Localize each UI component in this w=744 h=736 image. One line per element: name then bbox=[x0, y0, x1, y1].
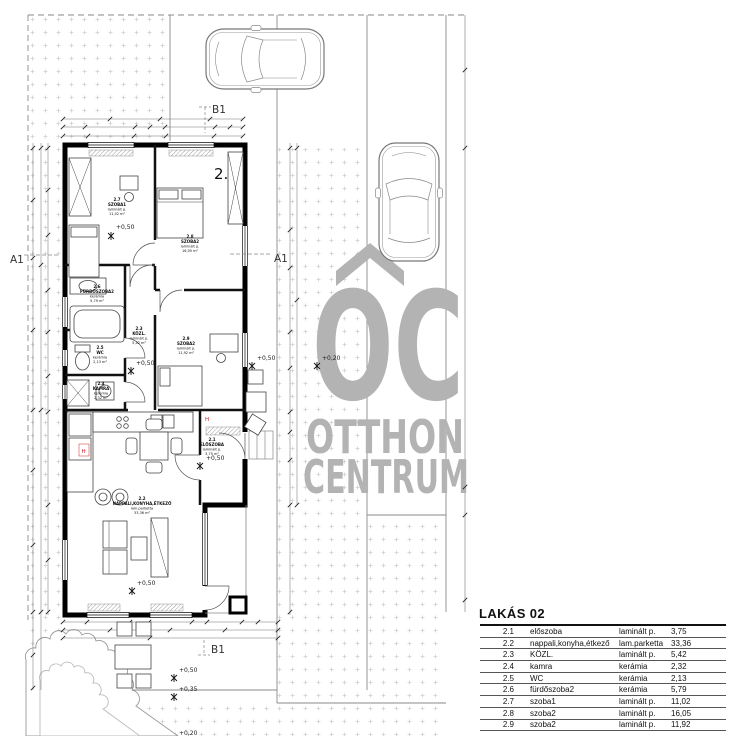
svg-text:SZOBA2: SZOBA2 bbox=[181, 239, 199, 244]
watermark-logo: OC OTTHON CENTRUM bbox=[303, 243, 469, 504]
room-name: szoba2 bbox=[530, 709, 619, 718]
svg-text:kerámia: kerámia bbox=[93, 356, 107, 360]
svg-text:33,36 m²: 33,36 m² bbox=[134, 511, 151, 515]
room-floor: laminált p. bbox=[619, 650, 671, 659]
svg-text:2,32 m²: 2,32 m² bbox=[94, 396, 108, 400]
room-number: 2.5 bbox=[480, 674, 514, 683]
level-050: +0,50 bbox=[206, 455, 225, 462]
room-floor: kerámia bbox=[619, 685, 671, 694]
svg-text:laminált p.: laminált p. bbox=[181, 245, 200, 249]
level-020: +0,20 bbox=[179, 730, 198, 736]
unit-number: 2. bbox=[214, 165, 228, 183]
room-name: WC bbox=[530, 674, 619, 683]
table-row: 2.9 szoba2 laminált p. 11,92 bbox=[480, 720, 726, 732]
svg-text:5,79 m²: 5,79 m² bbox=[90, 299, 104, 303]
room-number: 2.8 bbox=[480, 709, 514, 718]
svg-text:kerámia: kerámia bbox=[94, 392, 108, 396]
room-number: 2.9 bbox=[480, 720, 514, 729]
room-floor: laminált p. bbox=[619, 720, 671, 729]
table-row: 2.2 nappali,konyha,étkező lam.parketta 3… bbox=[480, 638, 726, 650]
level-050: +0,50 bbox=[116, 224, 135, 231]
svg-text:11,92 m²: 11,92 m² bbox=[178, 351, 195, 355]
table-row: 2.6 fürdőszoba2 kerámia 5,79 bbox=[480, 684, 726, 696]
level-050: +0,50 bbox=[136, 360, 155, 367]
room-number: 2.7 bbox=[480, 697, 514, 706]
table-row: 2.8 szoba2 laminált p. 16,05 bbox=[480, 708, 726, 720]
room-area: 5,79 bbox=[671, 685, 711, 694]
room-name: kamra bbox=[530, 662, 619, 671]
room-floor: lam.parketta bbox=[619, 639, 671, 648]
room-area: 2,32 bbox=[671, 662, 711, 671]
room-area: 33,36 bbox=[671, 639, 711, 648]
room-area: 16,05 bbox=[671, 709, 711, 718]
section-a1-right: A1 bbox=[274, 253, 288, 265]
room-number: 2.3 bbox=[480, 650, 514, 659]
table-row: 2.3 KÖZL. laminált p. 5,42 bbox=[480, 649, 726, 661]
svg-text:KÖZL.: KÖZL. bbox=[132, 331, 146, 336]
room-floor: laminált p. bbox=[619, 697, 671, 706]
level-050: +0,50 bbox=[179, 667, 198, 674]
svg-text:laminált p.: laminált p. bbox=[203, 448, 222, 452]
svg-text:NAPPALI,KONYHA,ÉTKEZŐ: NAPPALI,KONYHA,ÉTKEZŐ bbox=[113, 501, 172, 506]
svg-text:SZOBA1: SZOBA1 bbox=[108, 202, 126, 207]
level-050: +0,50 bbox=[137, 580, 156, 587]
room-area: 3,75 bbox=[671, 627, 711, 636]
svg-text:16,05 m²: 16,05 m² bbox=[182, 249, 199, 253]
room-floor: kerámia bbox=[619, 662, 671, 671]
svg-text:laminált p.: laminált p. bbox=[177, 347, 196, 351]
entrance-steps bbox=[249, 431, 273, 459]
svg-text:laminált p.: laminált p. bbox=[108, 208, 127, 212]
table-row: 2.1 előszoba laminált p. 3,75 bbox=[480, 626, 726, 638]
svg-text:3,75 m²: 3,75 m² bbox=[205, 452, 219, 456]
watermark-oc: OC bbox=[312, 261, 464, 435]
table-row: 2.5 WC kerámia 2,13 bbox=[480, 673, 726, 685]
room-area: 11,02 bbox=[671, 697, 711, 706]
section-b1-bottom: B1 bbox=[211, 644, 225, 656]
room-number: 2.4 bbox=[480, 662, 514, 671]
room-area: 11,92 bbox=[671, 720, 711, 729]
section-b1-top: B1 bbox=[212, 104, 226, 116]
svg-text:FÜRDŐSZOBA2: FÜRDŐSZOBA2 bbox=[80, 289, 114, 294]
level-050: +0,50 bbox=[257, 355, 276, 362]
svg-text:ELŐSZOBA: ELŐSZOBA bbox=[200, 442, 225, 447]
room-number: 2.2 bbox=[480, 639, 514, 648]
room-floor: laminált p. bbox=[619, 627, 671, 636]
room-name: szoba2 bbox=[530, 720, 619, 729]
area-table-body: 2.1 előszoba laminált p. 3,75 2.2 nappal… bbox=[480, 624, 726, 731]
h-marker: H bbox=[205, 417, 209, 423]
floorplan-sheet: OC OTTHON CENTRUM bbox=[0, 0, 744, 736]
svg-text:SZOBA2: SZOBA2 bbox=[177, 341, 195, 346]
h-marker: H bbox=[82, 449, 86, 455]
table-row: 2.4 kamra kerámia 2,32 bbox=[480, 661, 726, 673]
room-name: KÖZL. bbox=[530, 650, 619, 659]
level-020: +0,20 bbox=[322, 355, 341, 362]
room-area: 2,13 bbox=[671, 674, 711, 683]
svg-text:laminált p.: laminált p. bbox=[130, 337, 149, 341]
room-area: 5,42 bbox=[671, 650, 711, 659]
svg-text:WC: WC bbox=[96, 350, 103, 355]
svg-text:kerámia: kerámia bbox=[90, 295, 104, 299]
tree-outline bbox=[25, 630, 178, 736]
room-floor: laminált p. bbox=[619, 709, 671, 718]
room-name: fürdőszoba2 bbox=[530, 685, 619, 694]
level-035: +0,35 bbox=[179, 686, 198, 693]
room-name: előszoba bbox=[530, 627, 619, 636]
svg-text:lam.parketta: lam.parketta bbox=[131, 507, 153, 511]
table-title: LAKÁS 02 bbox=[479, 606, 742, 621]
table-row: 2.7 szoba1 laminált p. 11,02 bbox=[480, 696, 726, 708]
svg-text:11,02 m²: 11,02 m² bbox=[109, 212, 126, 216]
section-a1-left: A1 bbox=[10, 254, 24, 266]
svg-text:KAMRA: KAMRA bbox=[93, 386, 110, 391]
svg-text:5,42 m²: 5,42 m² bbox=[132, 341, 146, 345]
area-table: LAKÁS 02 2.1 előszoba laminált p. 3,75 2… bbox=[478, 606, 742, 736]
room-number: 2.6 bbox=[480, 685, 514, 694]
svg-text:2,13 m²: 2,13 m² bbox=[93, 360, 107, 364]
room-number: 2.1 bbox=[480, 627, 514, 636]
room-floor: kerámia bbox=[619, 674, 671, 683]
room-name: nappali,konyha,étkező bbox=[530, 639, 619, 648]
room-name: szoba1 bbox=[530, 697, 619, 706]
watermark-centrum: CENTRUM bbox=[303, 450, 469, 504]
